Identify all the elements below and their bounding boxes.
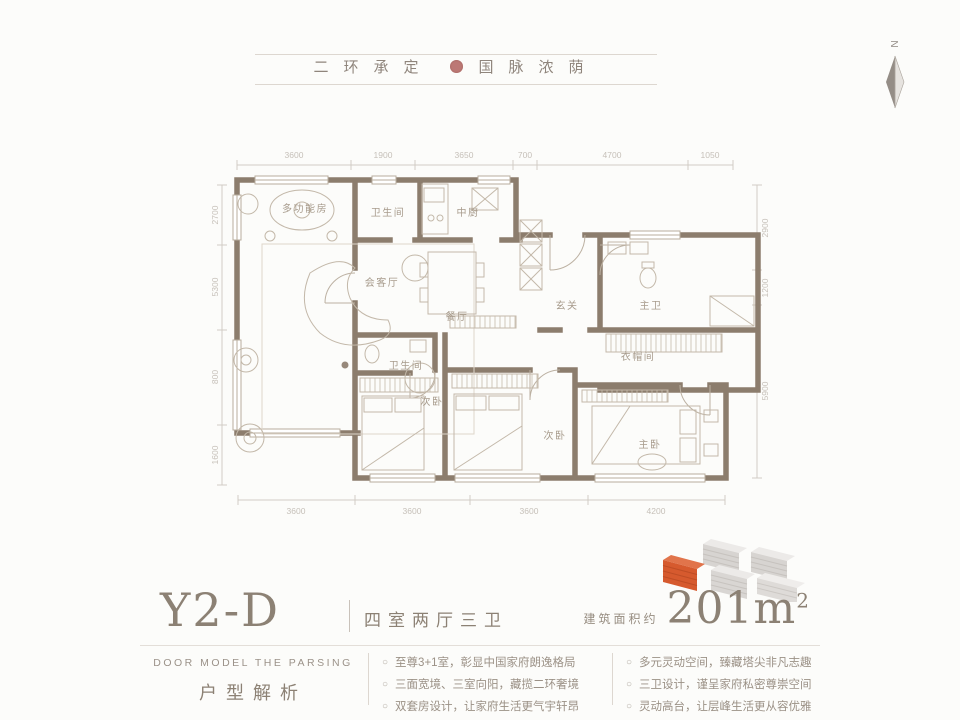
dim-top-3: 3650: [455, 150, 474, 160]
feature-text: 三卫设计，谨呈家府私密尊崇空间: [639, 676, 812, 694]
footer-divider-2: [612, 653, 613, 705]
bullet-icon: ○: [382, 698, 388, 716]
footer-feature-col2: ○多元灵动空间，臻藏塔尖非凡志趣 ○三卫设计，谨呈家府私密尊崇空间 ○灵动高台，…: [626, 654, 822, 720]
feature-item: ○双套房设计，让家府生活更气宇轩昂: [382, 698, 604, 720]
feature-item: ○三卫设计，谨呈家府私密尊崇空间: [626, 676, 822, 698]
unit-model-title: Y2-D: [160, 583, 280, 637]
area-prefix: 建筑面积约: [584, 610, 659, 627]
room-label-multi: 多功能房: [282, 202, 328, 215]
feature-item: ○多元灵动空间，臻藏塔尖非凡志趣: [626, 654, 822, 676]
bullet-icon: ○: [382, 676, 388, 694]
brochure-page: 二环承定 国脉浓荫 N 3600 1900 3650 700 4700 1050…: [0, 0, 960, 720]
footer-feature-col1: ○至尊3+1室，彰显中国家府朗逸格局 ○三面宽境、三室向阳，藏揽二环奢境 ○双套…: [382, 654, 604, 720]
room-label-dining: 餐厅: [446, 310, 469, 323]
dim-right-1: 2900: [760, 218, 770, 237]
dim-left-3: 800: [210, 370, 220, 384]
dim-right-3: 5900: [760, 381, 770, 400]
area-superscript: 2: [796, 588, 810, 612]
compass: N: [874, 34, 916, 112]
feature-item: ○灵动高台，让层峰生活更从容优雅: [626, 698, 822, 720]
bullet-icon: ○: [626, 676, 632, 694]
dim-top-4: 700: [518, 150, 532, 160]
dim-left-2: 5300: [210, 277, 220, 296]
room-label-master-bed: 主卧: [639, 438, 662, 451]
feature-text: 多元灵动空间，臻藏塔尖非凡志趣: [639, 654, 812, 672]
footer-divider-1: [368, 653, 369, 705]
dim-top-5: 4700: [603, 150, 622, 160]
floor-plan: 3600 1900 3650 700 4700 1050 3600 3600 3…: [210, 148, 775, 520]
room-label-bath-top: 卫生间: [371, 206, 406, 219]
furniture: [234, 184, 754, 470]
feature-text: 双套房设计，让家府生活更气宇轩昂: [395, 698, 579, 716]
dim-right-2: 1200: [760, 278, 770, 297]
compass-needle-icon: [886, 56, 904, 108]
bullet-icon: ○: [382, 654, 388, 672]
room-label-foyer: 玄关: [556, 299, 579, 312]
feature-text: 至尊3+1室，彰显中国家府朗逸格局: [395, 654, 576, 672]
room-label-cloakroom: 衣帽间: [621, 350, 656, 363]
title-divider: [349, 600, 350, 632]
room-label-master-bath: 主卫: [640, 300, 663, 312]
dim-bottom-4: 4200: [647, 506, 666, 516]
bullet-icon: ○: [626, 698, 632, 716]
feature-text: 灵动高台，让层峰生活更从容优雅: [639, 698, 812, 716]
room-label-living: 会客厅: [365, 276, 400, 289]
area-number: 201m: [667, 583, 797, 634]
feature-item: ○三面宽境、三室向阳，藏揽二环奢境: [382, 676, 604, 698]
dim-top-2: 1900: [374, 150, 393, 160]
feature-item: ○至尊3+1室，彰显中国家府朗逸格局: [382, 654, 604, 676]
compass-n-label: N: [888, 40, 899, 47]
room-label-bedroom3: 次卧: [544, 429, 567, 442]
dim-bottom-1: 3600: [287, 506, 306, 516]
bullet-icon: ○: [626, 654, 632, 672]
dim-top-1: 3600: [285, 150, 304, 160]
footer-cn-title: 户型解析: [145, 679, 361, 705]
footer-rule: [140, 645, 820, 646]
dim-bottom-2: 3600: [403, 506, 422, 516]
unit-layout-text: 四室两厅三卫: [364, 606, 508, 631]
header-rule-top: [255, 54, 657, 55]
dim-bottom-3: 3600: [520, 506, 539, 516]
header-slogan: 二环承定 国脉浓荫: [255, 56, 657, 77]
seal-icon: [450, 60, 463, 73]
room-label-bath-small: 卫生间: [389, 359, 424, 372]
room-label-bedroom2: 次卧: [421, 395, 444, 408]
built-area: 建筑面积约 201m2: [520, 583, 810, 634]
dim-top-6: 1050: [701, 150, 720, 160]
slogan-left-text: 二环承定: [313, 56, 433, 77]
area-value: 201m2: [667, 583, 810, 634]
header-rule-bottom: [255, 84, 657, 85]
dim-left-1: 2700: [210, 205, 220, 224]
slogan-right-text: 国脉浓荫: [479, 56, 599, 77]
feature-text: 三面宽境、三室向阳，藏揽二环奢境: [395, 676, 579, 694]
footer-left-block: DOOR MODEL THE PARSING 户型解析: [145, 657, 361, 705]
dim-left-4: 1600: [210, 445, 220, 464]
room-label-kitchen: 中厨: [457, 206, 480, 219]
footer-en-title: DOOR MODEL THE PARSING: [145, 657, 361, 669]
